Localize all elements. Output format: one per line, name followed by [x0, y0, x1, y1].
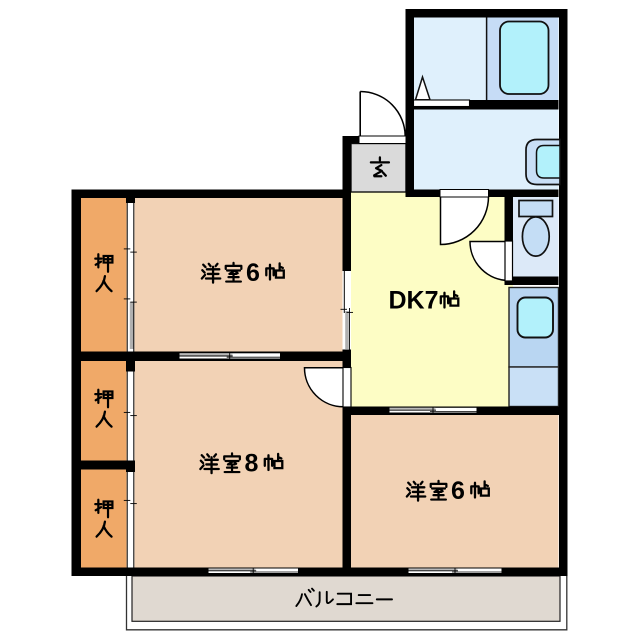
svg-text:DK7: DK7	[389, 287, 439, 315]
svg-text:6: 6	[451, 477, 465, 505]
svg-text:6: 6	[246, 259, 260, 287]
svg-text:8: 8	[245, 450, 259, 478]
